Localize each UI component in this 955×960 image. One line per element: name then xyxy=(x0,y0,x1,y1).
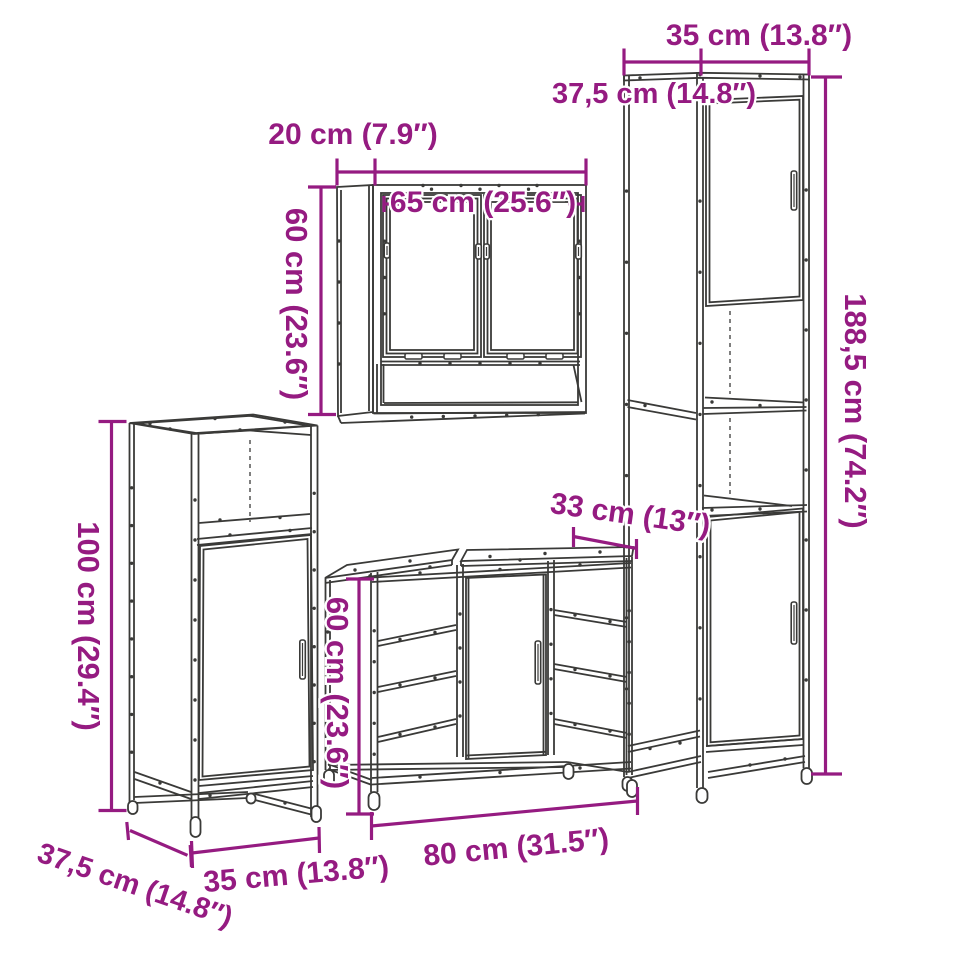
svg-text:37,5 cm (14.8″): 37,5 cm (14.8″) xyxy=(552,78,756,110)
svg-text:35 cm (13.8″): 35 cm (13.8″) xyxy=(666,19,852,52)
svg-text:65 cm (25.6″): 65 cm (25.6″) xyxy=(390,186,576,219)
svg-text:60 cm (23.6″): 60 cm (23.6″) xyxy=(320,597,355,789)
svg-text:60 cm (23.6″): 60 cm (23.6″) xyxy=(279,208,314,400)
svg-text:20 cm (7.9″): 20 cm (7.9″) xyxy=(268,118,437,151)
svg-text:188,5 cm (74.2″): 188,5 cm (74.2″) xyxy=(838,293,873,528)
svg-text:100 cm (29.4″): 100 cm (29.4″) xyxy=(71,521,106,731)
